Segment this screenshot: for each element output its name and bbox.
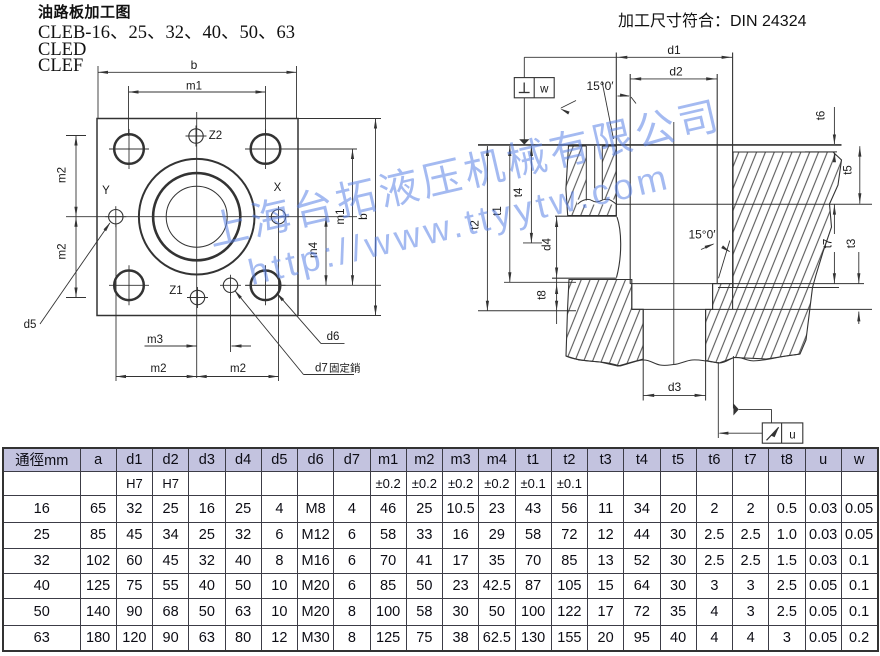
svg-text:15°0′: 15°0′ [586,79,614,93]
svg-text:t2: t2 [470,220,482,230]
svg-text:Y: Y [102,185,110,197]
svg-text:d7: d7 [315,363,328,375]
svg-text:t7: t7 [823,239,835,249]
svg-text:w: w [539,84,549,96]
svg-text:t5: t5 [843,165,855,175]
svg-text:m2: m2 [57,244,69,260]
svg-text:m2: m2 [57,167,69,183]
svg-text:m1: m1 [186,81,202,93]
svg-text:X: X [274,182,282,194]
svg-text:15°0′: 15°0′ [688,228,716,242]
svg-text:d4: d4 [542,238,554,251]
svg-text:t4: t4 [513,187,525,197]
svg-text:Z1: Z1 [169,285,182,297]
svg-text:m2: m2 [151,363,167,375]
svg-text:t8: t8 [537,290,549,300]
svg-text:m3: m3 [147,334,163,346]
svg-text:m4: m4 [308,241,320,258]
svg-text:b: b [356,213,370,220]
svg-text:d2: d2 [669,65,683,79]
svg-text:t1: t1 [492,206,504,216]
svg-text:t3: t3 [846,239,858,249]
svg-text:d3: d3 [668,380,682,394]
svg-text:固定銷: 固定銷 [329,362,361,375]
svg-text:d5: d5 [24,319,37,331]
svg-text:d6: d6 [327,331,340,343]
svg-text:m2: m2 [230,363,246,375]
svg-text:u: u [789,430,795,442]
svg-text:m1: m1 [335,209,347,225]
svg-text:t6: t6 [816,111,828,121]
svg-text:Z2: Z2 [209,130,222,142]
svg-text:d1: d1 [667,43,681,57]
